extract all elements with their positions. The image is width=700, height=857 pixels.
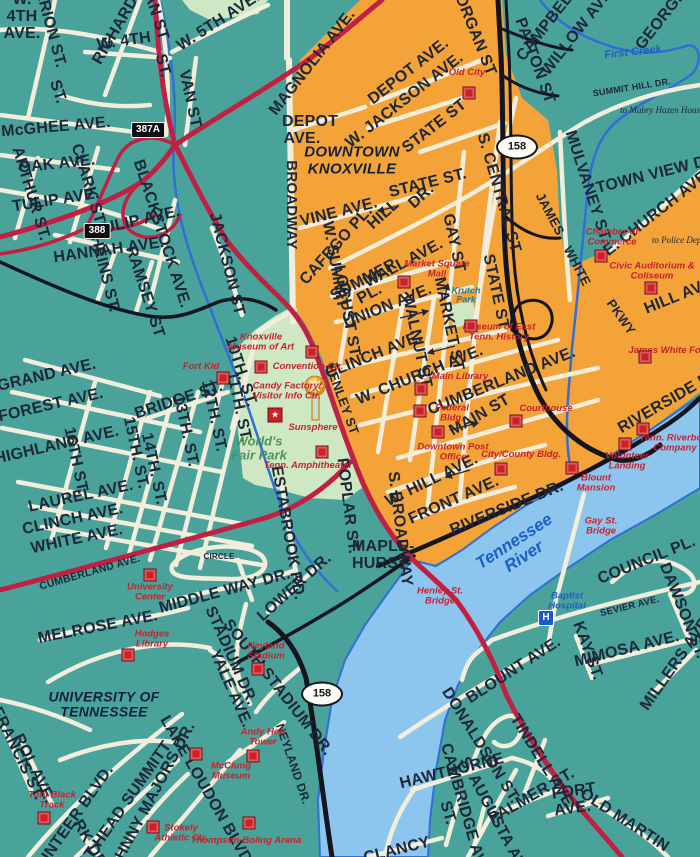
map-canvas bbox=[0, 0, 700, 857]
knoxville-street-map: W. 4TH AVE.MARION ST.RICHARDS ST.VAN STW… bbox=[0, 0, 700, 857]
